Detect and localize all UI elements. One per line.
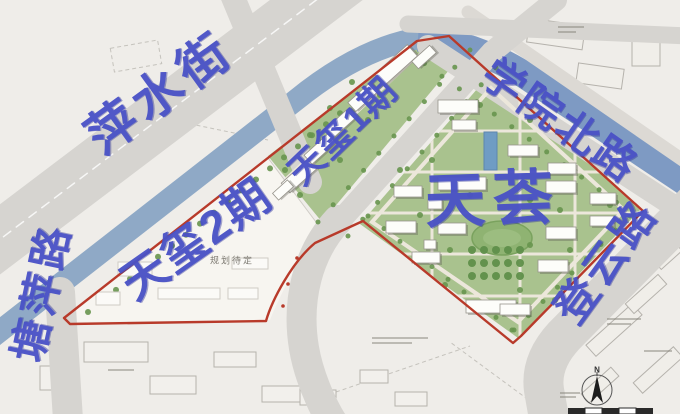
pool bbox=[484, 132, 497, 170]
map-graphic bbox=[0, 0, 680, 414]
central-oval-inner bbox=[483, 229, 521, 247]
compass-north-label: N bbox=[594, 366, 600, 375]
planning-pending-note: 规划待定 bbox=[210, 254, 254, 267]
site-plan-map: 萍水街塘萍路学院北路登云路天玺2期天玺1期天荟 规划待定 N bbox=[0, 0, 680, 414]
road-tangping bbox=[60, 292, 68, 414]
road-top bbox=[408, 24, 680, 36]
scale-bar bbox=[568, 408, 653, 414]
